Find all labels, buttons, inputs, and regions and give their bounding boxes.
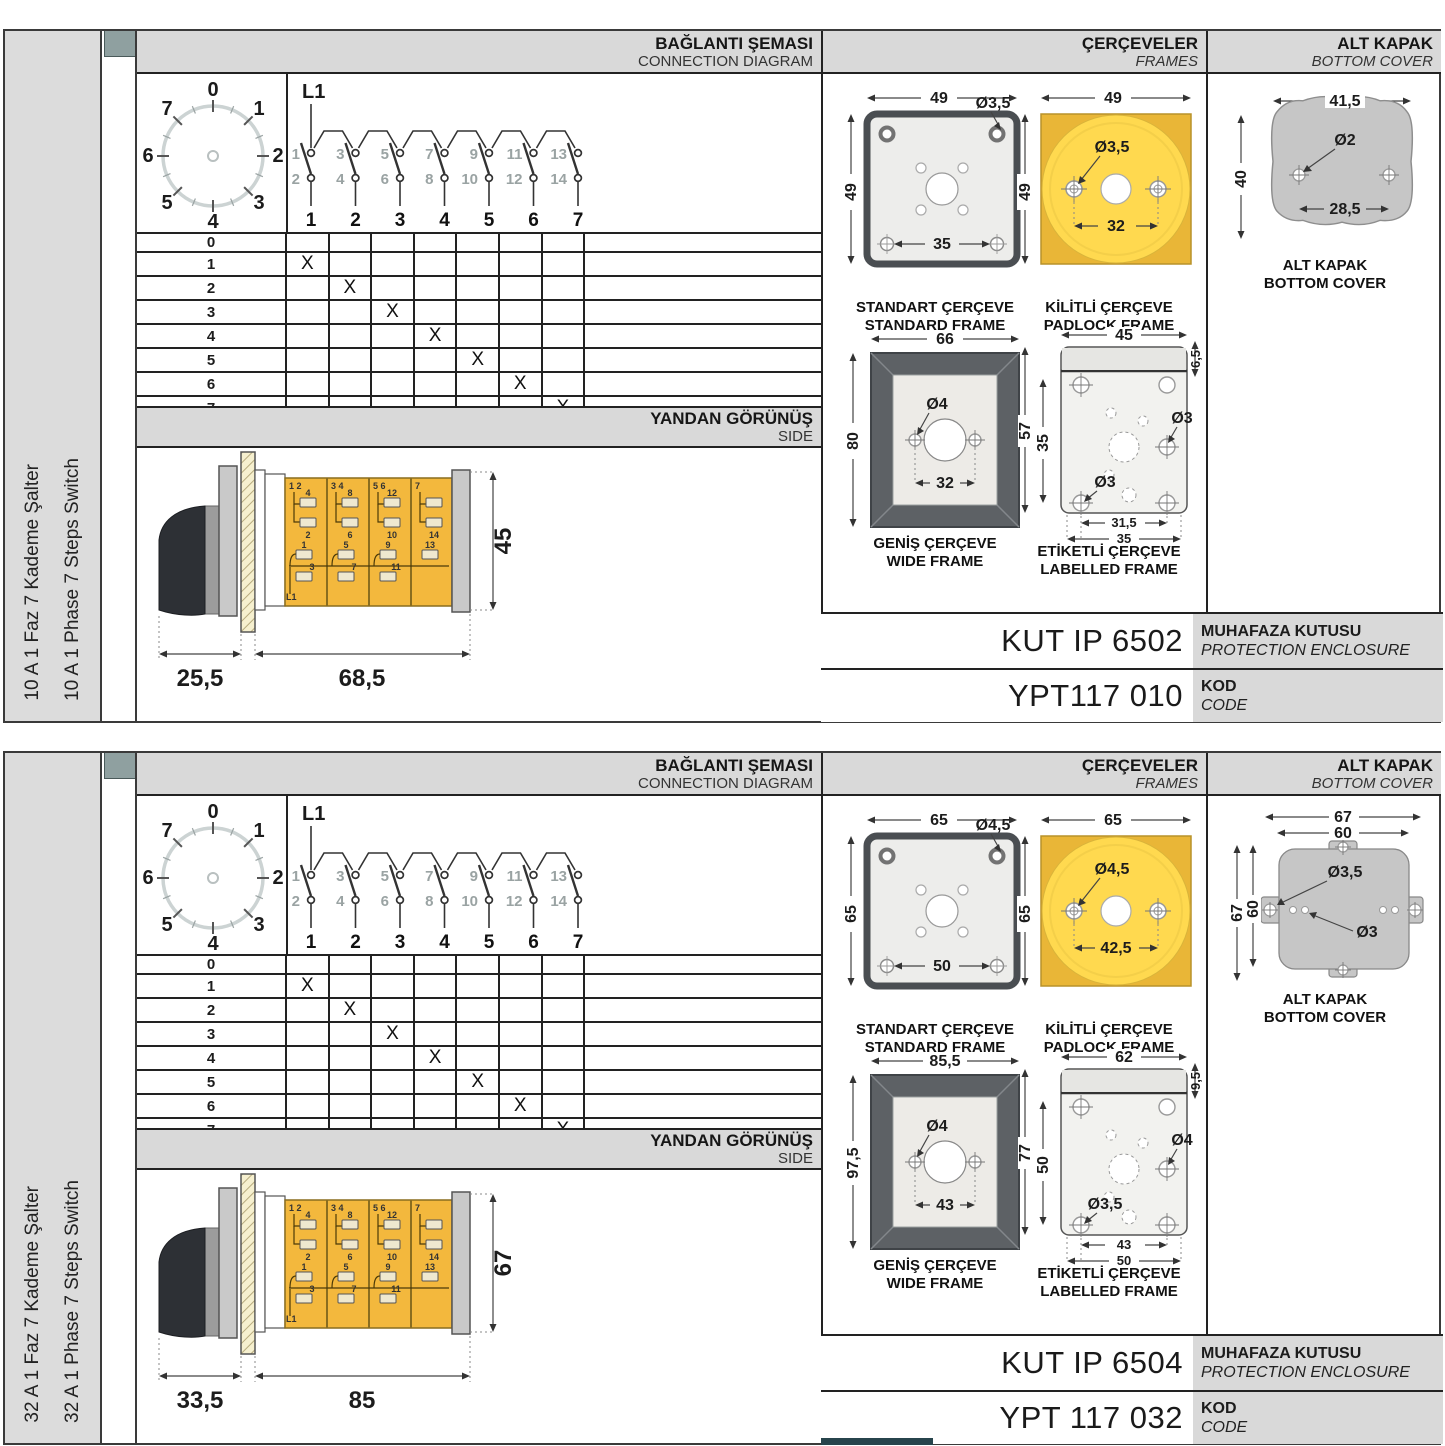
dimension-label: 32	[1107, 218, 1125, 235]
contact-cell: X	[415, 325, 458, 347]
contact-cell	[330, 325, 373, 347]
terminal-number-odd: 7	[425, 146, 433, 163]
dial-position-number: 3	[253, 192, 264, 214]
dimension-label: 33,5	[177, 1387, 224, 1414]
side-view-header: YANDAN GÖRÜNÜŞ SIDE	[137, 406, 821, 448]
corner-tab-square	[104, 31, 137, 57]
side-label-column: 10 A 1 Faz 7 Kademe Şalter 10 A 1 Phase …	[5, 31, 102, 721]
labelled-frame-drawing: Ø4 Ø3,5 43 50 62 77 50 9,5	[1017, 1049, 1203, 1271]
contact-cell: X	[287, 975, 330, 997]
step-row-label: 1	[137, 975, 287, 997]
contact-cell	[543, 349, 586, 371]
contact-cell	[543, 325, 586, 347]
order-code-label: KOD CODE	[1193, 1392, 1443, 1444]
dimension-label: Ø3	[1171, 410, 1192, 427]
wide-frame-caption: GENİŞ ÇERÇEVEWIDE FRAME	[835, 535, 1035, 571]
contact-cell	[457, 1047, 500, 1069]
dimension-label: Ø4	[926, 396, 947, 413]
header-title-en: FRAMES	[1135, 775, 1198, 792]
dimension-label: Ø2	[1334, 132, 1355, 149]
step-contact-table: 01X2X3X4X5X6X7X	[137, 232, 821, 406]
enclosure-code-value: KUT IP 6504	[821, 1336, 1193, 1390]
dimension-label: 80	[845, 432, 862, 450]
product-codes-table: KUT IP 6504 MUHAFAZA KUTUSU PROTECTION E…	[821, 1334, 1443, 1444]
contact-cell	[330, 253, 373, 275]
terminal-number-odd: 5	[381, 146, 389, 163]
terminal-number-even: 12	[506, 893, 523, 910]
contact-cell	[330, 234, 373, 251]
contact-cell	[372, 325, 415, 347]
bottom-cover-header: ALT KAPAK BOTTOM COVER	[1208, 753, 1441, 796]
dimension-label: 85,5	[929, 1053, 960, 1070]
dimension-label: 35	[933, 236, 951, 253]
terminal-label: 7	[351, 562, 356, 572]
contact-cell	[330, 301, 373, 323]
dimension-label: Ø3,5	[1095, 139, 1130, 156]
table-row: 2X	[137, 277, 821, 301]
wide-frame-caption: GENİŞ ÇERÇEVEWIDE FRAME	[835, 1257, 1035, 1293]
contact-cell	[500, 325, 543, 347]
dial-position-number: 5	[161, 192, 172, 214]
dial-position-number: 6	[142, 867, 153, 889]
contact-cell	[330, 1071, 373, 1093]
contact-cell: X	[415, 1047, 458, 1069]
terminal-label: 5	[343, 540, 348, 550]
contact-cell	[543, 234, 586, 251]
contact-cell	[415, 234, 458, 251]
table-row: 5X	[137, 349, 821, 373]
table-row: 3X	[137, 1023, 821, 1047]
contact-cell	[415, 1071, 458, 1093]
header-title-tr: ALT KAPAK	[1337, 34, 1433, 53]
dimension-label: 67	[490, 1250, 517, 1277]
dimension-label: 97,5	[845, 1147, 862, 1178]
contact-cell	[500, 956, 543, 973]
contact-cell	[543, 1071, 586, 1093]
header-title-tr: ÇERÇEVELER	[1082, 34, 1198, 53]
circuit-column-number: 3	[395, 932, 406, 953]
contact-cell	[543, 373, 586, 395]
side-view-header: YANDAN GÖRÜNÜŞ SIDE	[137, 1128, 821, 1170]
contact-circuit-drawing: L1 12134256378491051112613147	[288, 796, 821, 954]
dimension-label: 77	[1017, 1144, 1034, 1162]
dimension-label: 50	[933, 958, 951, 975]
product-name-turkish: 10 A 1 Faz 7 Kademe Şalter	[22, 464, 44, 701]
terminal-label: 3	[309, 1284, 314, 1294]
table-row: 5X	[137, 1071, 821, 1095]
header-title-tr: ÇERÇEVELER	[1082, 756, 1198, 775]
circuit-column-number: 6	[528, 932, 539, 953]
contact-cell	[500, 1071, 543, 1093]
contact-cell	[543, 1023, 586, 1045]
product-panel-32a: 32 A 1 Faz 7 Kademe Şalter 32 A 1 Phase …	[3, 751, 1441, 1445]
circuit-column-number: 1	[306, 210, 317, 231]
dimension-label: 43	[1117, 1237, 1131, 1252]
table-filler	[585, 956, 821, 973]
contact-cell	[415, 301, 458, 323]
contact-cell: X	[330, 277, 373, 299]
terminal-number-even: 14	[550, 893, 567, 910]
contact-cell	[543, 253, 586, 275]
contact-cell	[500, 1023, 543, 1045]
contact-cell: X	[287, 253, 330, 275]
contact-cell	[372, 277, 415, 299]
terminal-number-odd: 11	[507, 868, 523, 885]
contact-cell	[457, 234, 500, 251]
module-corner-label: 7	[415, 1203, 420, 1213]
terminal-label: 4	[305, 1210, 310, 1220]
dial-position-number: 4	[207, 933, 219, 954]
table-row: 4X	[137, 1047, 821, 1071]
table-row: 1X	[137, 253, 821, 277]
terminal-label: 14	[429, 530, 439, 540]
contact-cell: X	[457, 1071, 500, 1093]
padlock-frame-drawing: Ø3,5 32 49 49	[1015, 88, 1203, 296]
enclosure-code-value: KUT IP 6502	[821, 614, 1193, 668]
contact-cell	[457, 999, 500, 1021]
contact-cell	[372, 1095, 415, 1117]
contact-cell	[543, 1047, 586, 1069]
header-title-tr: BAĞLANTI ŞEMASI	[655, 34, 813, 53]
circuit-column-number: 7	[573, 932, 584, 953]
standard-frame-drawing: 50 65 Ø4,5 65	[841, 810, 1029, 1018]
contact-cell	[330, 349, 373, 371]
dimension-label: 40	[1233, 170, 1250, 188]
circuit-column-number: 5	[484, 932, 495, 953]
contact-cell	[287, 1023, 330, 1045]
table-filler	[585, 975, 821, 997]
terminal-number-even: 14	[550, 171, 567, 188]
corner-tab-square	[104, 753, 137, 779]
circuit-column-number: 5	[484, 210, 495, 231]
contact-cell	[543, 277, 586, 299]
circuit-column-number: 7	[573, 210, 584, 231]
contact-cell	[415, 956, 458, 973]
circuit-column-number: 4	[439, 932, 450, 953]
switch-handle	[159, 1228, 205, 1337]
dimension-label: 49	[843, 183, 860, 201]
terminal-label: 1	[301, 1262, 306, 1272]
step-row-label: 5	[137, 1071, 287, 1093]
header-title-en: CONNECTION DIAGRAM	[638, 53, 813, 70]
contact-cell	[372, 234, 415, 251]
contact-cell: X	[330, 999, 373, 1021]
contact-cell	[287, 349, 330, 371]
contact-cell	[543, 301, 586, 323]
standard-frame-drawing: 35 49 Ø3,5 49	[841, 88, 1029, 296]
product-name-english: 32 A 1 Phase 7 Steps Switch	[62, 1180, 84, 1423]
bottom-cover-header: ALT KAPAK BOTTOM COVER	[1208, 31, 1441, 74]
dimension-label: 49	[1017, 183, 1034, 201]
contact-cell	[415, 975, 458, 997]
dimension-label: 28,5	[1329, 201, 1360, 218]
product-codes-table: KUT IP 6502 MUHAFAZA KUTUSU PROTECTION E…	[821, 612, 1443, 722]
product-panel-10a: 10 A 1 Faz 7 Kademe Şalter 10 A 1 Phase …	[3, 29, 1441, 723]
feed-label: L1	[302, 803, 325, 825]
contact-cell	[330, 1047, 373, 1069]
table-filler	[585, 1047, 821, 1069]
dimension-label: Ø3	[1356, 924, 1377, 941]
table-filler	[585, 301, 821, 323]
terminal-number-even: 10	[461, 893, 478, 910]
mounting-panel-hatch	[241, 1174, 255, 1354]
contact-cell	[500, 975, 543, 997]
rotary-dial-drawing: 01234567	[137, 74, 286, 232]
table-row: 0	[137, 234, 821, 253]
step-row-label: 6	[137, 373, 287, 395]
dimension-label: 50	[1035, 1156, 1052, 1174]
terminal-number-odd: 7	[425, 868, 433, 885]
dimension-label: 25,5	[177, 665, 224, 692]
terminal-label: 11	[391, 562, 401, 572]
dial-position-number: 1	[253, 820, 264, 842]
dimension-label: Ø3,5	[1328, 864, 1363, 881]
module-corner-label: 1 2	[289, 481, 302, 491]
dimension-label: 65	[843, 905, 860, 923]
contact-cell	[330, 1095, 373, 1117]
dimension-label: Ø4,5	[976, 817, 1011, 834]
contact-cell	[287, 956, 330, 973]
table-row: 3X	[137, 301, 821, 325]
header-title-tr: YANDAN GÖRÜNÜŞ	[650, 409, 813, 428]
table-row: 1X	[137, 975, 821, 999]
terminal-label: 14	[429, 1252, 439, 1262]
contact-cell	[415, 1095, 458, 1117]
contact-cell: X	[372, 301, 415, 323]
dimension-label: 45	[490, 528, 517, 555]
connection-diagram-header: BAĞLANTI ŞEMASI CONNECTION DIAGRAM	[137, 753, 821, 796]
switch-handle	[159, 506, 205, 615]
dimension-label: 65	[930, 812, 948, 829]
dial-position-number: 7	[161, 98, 172, 120]
terminal-label: 13	[425, 540, 435, 550]
contact-cell	[500, 277, 543, 299]
dimension-label: 41,5	[1329, 93, 1360, 110]
table-filler	[585, 325, 821, 347]
labelled-frame-drawing: Ø3 Ø3 31,5 35 45 57 35 6,5	[1017, 327, 1203, 549]
enclosure-code-label: MUHAFAZA KUTUSU PROTECTION ENCLOSURE	[1193, 1336, 1443, 1390]
contact-cell	[372, 1071, 415, 1093]
contact-cell: X	[500, 373, 543, 395]
terminal-label: 12	[387, 1210, 397, 1220]
step-row-label: 0	[137, 234, 287, 251]
header-title-tr: ALT KAPAK	[1337, 756, 1433, 775]
table-filler	[585, 253, 821, 275]
contact-cell	[372, 373, 415, 395]
terminal-label: 3	[309, 562, 314, 572]
side-view-drawing: 1 242133 486575 6121091171413L1 25,5 68,…	[137, 448, 821, 724]
dimension-label: 42,5	[1100, 940, 1131, 957]
terminal-number-even: 8	[425, 893, 433, 910]
dimension-label: Ø4,5	[1095, 861, 1130, 878]
step-row-label: 2	[137, 277, 287, 299]
contact-cell: X	[457, 349, 500, 371]
circuit-column-number: 6	[528, 210, 539, 231]
dimension-label: 60	[1334, 825, 1352, 842]
terminal-number-odd: 1	[292, 868, 300, 885]
wide-frame-drawing: Ø4 32 66 80	[845, 331, 1025, 531]
terminal-number-odd: 9	[470, 146, 478, 163]
contact-cell	[500, 349, 543, 371]
contact-cell	[330, 1023, 373, 1045]
terminal-number-odd: 11	[507, 146, 523, 163]
standard-frame-caption: STANDART ÇERÇEVESTANDARD FRAME	[831, 299, 1039, 335]
header-title-tr: YANDAN GÖRÜNÜŞ	[650, 1131, 813, 1150]
bottom-cover-caption: ALT KAPAKBOTTOM COVER	[1215, 257, 1435, 293]
terminal-label: 6	[347, 1252, 352, 1262]
dimension-label: 43	[936, 1197, 954, 1214]
mounting-panel-hatch	[241, 452, 255, 632]
wide-frame-drawing: Ø4 43 85,5 97,5	[845, 1053, 1025, 1253]
dimension-label: 66	[936, 331, 954, 348]
frames-header: ÇERÇEVELER FRAMES	[823, 753, 1206, 796]
contact-cell	[457, 301, 500, 323]
table-filler	[585, 234, 821, 251]
contact-cell	[543, 975, 586, 997]
terminal-label: 12	[387, 488, 397, 498]
contact-cell	[500, 999, 543, 1021]
table-filler	[585, 1023, 821, 1045]
header-title-en: SIDE	[778, 1150, 813, 1167]
step-row-label: 4	[137, 325, 287, 347]
terminal-number-even: 4	[336, 893, 345, 910]
dial-position-number: 3	[253, 914, 264, 936]
step-row-label: 1	[137, 253, 287, 275]
enclosure-code-label: MUHAFAZA KUTUSU PROTECTION ENCLOSURE	[1193, 614, 1443, 668]
dimension-label: 31,5	[1111, 515, 1136, 530]
dial-position-number: 0	[207, 801, 218, 823]
side-label-column: 32 A 1 Faz 7 Kademe Şalter 32 A 1 Phase …	[5, 753, 102, 1443]
contact-cell	[287, 373, 330, 395]
terminal-label: 10	[387, 1252, 397, 1262]
terminal-number-even: 6	[381, 893, 389, 910]
circuit-column-number: 4	[439, 210, 450, 231]
table-row: 0	[137, 956, 821, 975]
terminal-number-odd: 13	[550, 868, 567, 885]
feed-label: L1	[302, 81, 325, 103]
contact-cell	[287, 301, 330, 323]
terminal-label: 10	[387, 530, 397, 540]
terminal-label: 1	[301, 540, 306, 550]
order-code-value: YPT117 010	[821, 670, 1193, 722]
contact-cell	[543, 1095, 586, 1117]
labelled-frame-caption: ETİKETLİ ÇERÇEVELABELLED FRAME	[1009, 1265, 1209, 1301]
contact-circuit-drawing: L1 12134256378491051112613147	[288, 74, 821, 232]
dial-position-number: 5	[161, 914, 172, 936]
terminal-number-odd: 3	[336, 868, 344, 885]
terminal-number-even: 2	[292, 171, 300, 188]
terminal-number-even: 10	[461, 171, 478, 188]
dimension-label: Ø4	[1171, 1132, 1192, 1149]
header-title-en: SIDE	[778, 428, 813, 445]
dimension-label: Ø3	[1094, 474, 1115, 491]
contact-cell	[500, 301, 543, 323]
dimension-label: 9,5	[1188, 1072, 1203, 1090]
dial-position-number: 1	[253, 98, 264, 120]
table-row: 4X	[137, 325, 821, 349]
contact-cell	[330, 975, 373, 997]
contact-cell	[500, 234, 543, 251]
contact-cell	[457, 975, 500, 997]
padlock-frame-drawing: Ø4,5 42,5 65 65	[1015, 810, 1203, 1018]
contact-cell	[415, 349, 458, 371]
circuit-column-number: 1	[306, 932, 317, 953]
step-row-label: 4	[137, 1047, 287, 1069]
circuit-column-number: 2	[350, 210, 361, 231]
table-filler	[585, 1071, 821, 1093]
contact-cell	[372, 999, 415, 1021]
contact-cell	[372, 1047, 415, 1069]
contact-cell	[457, 1095, 500, 1117]
terminal-label: 8	[347, 1210, 352, 1220]
dimension-label: 45	[1115, 327, 1133, 344]
table-row: 6X	[137, 373, 821, 397]
terminal-label: 2	[305, 1252, 310, 1262]
contact-cell	[372, 253, 415, 275]
contact-cell: X	[500, 1095, 543, 1117]
contact-cell	[415, 277, 458, 299]
terminal-number-odd: 5	[381, 868, 389, 885]
terminal-number-even: 4	[336, 171, 345, 188]
dimension-label: 85	[349, 1387, 376, 1414]
terminal-number-even: 8	[425, 171, 433, 188]
dial-position-number: 2	[272, 867, 283, 889]
table-filler	[585, 349, 821, 371]
contact-cell	[287, 277, 330, 299]
contact-cell	[287, 1095, 330, 1117]
terminal-number-even: 12	[506, 171, 523, 188]
contact-cell	[457, 956, 500, 973]
table-filler	[585, 277, 821, 299]
contact-cell	[287, 325, 330, 347]
terminal-label: 6	[347, 530, 352, 540]
dial-position-number: 7	[161, 820, 172, 842]
step-row-label: 2	[137, 999, 287, 1021]
contact-cell	[543, 999, 586, 1021]
side-view-drawing: 1 242133 486575 6121091171413L1 33,5 85 …	[137, 1170, 821, 1446]
contact-cell	[287, 999, 330, 1021]
terminal-label: 13	[425, 1262, 435, 1272]
module-corner-label: 3 4	[331, 481, 344, 491]
dimension-label: 35	[1035, 434, 1052, 452]
labelled-frame-caption: ETİKETLİ ÇERÇEVELABELLED FRAME	[1009, 543, 1209, 579]
step-row-label: 3	[137, 1023, 287, 1045]
table-filler	[585, 373, 821, 395]
contact-cell	[372, 349, 415, 371]
dimension-label: Ø4	[926, 1118, 947, 1135]
header-title-en: BOTTOM COVER	[1312, 775, 1433, 792]
dimension-label: 60	[1245, 900, 1262, 918]
dimension-label: 32	[936, 475, 954, 492]
bottom-cover-drawing: Ø3,5 Ø3 67 60 67 60	[1225, 809, 1425, 985]
connection-diagram-header: BAĞLANTI ŞEMASI CONNECTION DIAGRAM	[137, 31, 821, 74]
terminal-number-odd: 13	[550, 146, 567, 163]
dimension-label: 65	[1017, 905, 1034, 923]
product-name-english: 10 A 1 Phase 7 Steps Switch	[62, 458, 84, 701]
step-row-label: 5	[137, 349, 287, 371]
dimension-label: 49	[930, 90, 948, 107]
table-filler	[585, 1095, 821, 1117]
step-contact-table: 01X2X3X4X5X6X7X	[137, 954, 821, 1128]
dial-position-number: 4	[207, 211, 219, 232]
circuit-column-number: 2	[350, 932, 361, 953]
terminal-number-even: 6	[381, 171, 389, 188]
product-name-turkish: 32 A 1 Faz 7 Kademe Şalter	[22, 1186, 44, 1423]
contact-cell	[372, 956, 415, 973]
rotary-dial-drawing: 01234567	[137, 796, 286, 954]
terminal-label: 2	[305, 530, 310, 540]
contact-cell	[500, 253, 543, 275]
